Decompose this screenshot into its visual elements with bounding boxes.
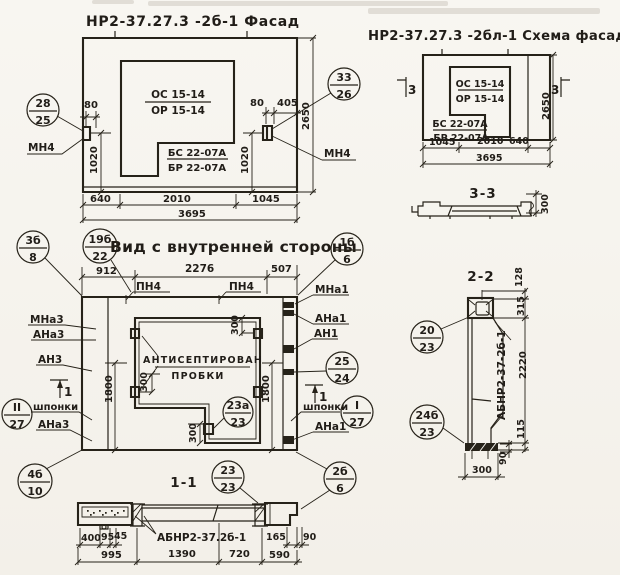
marker-top: 3б <box>25 234 41 247</box>
section-2-2-title: 2-2 <box>467 269 494 285</box>
marker-bottom: 23 <box>419 341 434 354</box>
marker-top: 25 <box>334 355 349 368</box>
block-mark-bottom: БР 22-07А <box>168 163 226 174</box>
marker-top: 1б <box>339 236 355 249</box>
profile-band <box>142 505 265 521</box>
scan-smudge <box>368 8 600 14</box>
dim-2276: 2276 <box>185 263 214 275</box>
plate-legs <box>472 451 488 459</box>
section-cut-label-right: 3 <box>551 83 559 97</box>
marker-bottom: 8 <box>29 251 37 264</box>
leader-line <box>296 452 330 509</box>
facade-drawing: НР2-37.27.3 -2б-1 Фасад ОС 15-14 ОР 15-1… <box>27 14 360 223</box>
window-mark-bottom: ОР 15-14 <box>456 94 505 105</box>
label-shponki-left: шпонки <box>33 402 78 413</box>
leader-line <box>36 430 92 441</box>
marker-top: 33 <box>336 71 351 84</box>
note-line-2: ПРОБКИ <box>171 371 224 382</box>
dim-640: 640 <box>509 136 529 147</box>
block-mark-top: БС 22-07А <box>432 119 488 130</box>
label-mna3: МНа3 <box>30 314 64 326</box>
leader-line <box>292 432 349 440</box>
marker-bottom: 6 <box>336 482 344 495</box>
marker-top: 24б <box>416 409 439 422</box>
leader-line <box>295 295 349 304</box>
section-2-2: 2-2 АБНР2-37-2б-1 128 315 2220 115 90 30… <box>410 267 529 480</box>
dim-2010: 2010 <box>477 136 504 147</box>
scan-smudge <box>92 0 134 4</box>
marker-bottom: 22 <box>92 250 107 263</box>
dim-400: 400 <box>81 533 101 544</box>
dim-1020-right: 1020 <box>240 146 251 174</box>
marker-bottom: 23 <box>220 481 235 494</box>
dim-line <box>262 107 301 124</box>
inner-view-title: Вид с внутренней стороны <box>110 238 357 256</box>
dim-300-left: 300 <box>139 372 150 392</box>
marker-bottom: 27 <box>9 418 24 431</box>
leader-line <box>240 488 258 503</box>
dim-3695: 3695 <box>178 209 206 220</box>
label-ana1: АНа1 <box>315 313 346 325</box>
marker-top: II <box>13 401 21 414</box>
section-cut-mark <box>397 77 406 97</box>
marker-bottom: 27 <box>349 416 364 429</box>
dim-995: 995 <box>101 550 122 561</box>
profile-left-block <box>78 503 132 525</box>
dim-1800-left: 1800 <box>104 375 115 403</box>
cut-arrowhead <box>312 385 318 393</box>
cut-arrowhead <box>57 380 63 388</box>
block-mark-top: БС 22-07А <box>168 148 226 159</box>
marker-top: 23а <box>227 399 250 412</box>
marker-top: 2б <box>332 465 348 478</box>
marker-bottom: 6 <box>343 253 351 266</box>
dim-1020-left: 1020 <box>89 146 100 174</box>
dim-300: 300 <box>472 465 492 476</box>
section-3-3-title: 3-3 <box>469 186 496 202</box>
dim-300: 300 <box>540 194 551 214</box>
dim-95: 95 <box>101 532 114 543</box>
label-an3: АН3 <box>38 354 62 366</box>
profile-tab-pin <box>102 525 106 529</box>
dim-1045: 1045 <box>429 137 455 148</box>
window-mark-bottom: ОР 15-14 <box>151 105 205 117</box>
cut-1-label-left: 1 <box>64 385 72 399</box>
leader-line <box>443 428 464 443</box>
leader-line <box>45 258 82 296</box>
marker-top: 4б <box>27 468 43 481</box>
section-1-1-title: 1-1 <box>170 475 197 491</box>
marker-bottom: 24 <box>334 372 350 385</box>
section-cut-label-left: 3 <box>408 83 416 97</box>
dim-90: 90 <box>303 532 317 543</box>
dim-315: 315 <box>516 296 527 316</box>
dim-300-top: 300 <box>230 315 241 335</box>
dim-90: 90 <box>498 451 509 465</box>
anchor-label-mn4-right: МН4 <box>324 148 351 160</box>
window-mark-top: ОС 15-14 <box>151 89 205 101</box>
leader-line <box>294 371 326 372</box>
dim-720: 720 <box>229 549 250 560</box>
section-3-3-profile <box>412 202 531 219</box>
marker-bottom: 23 <box>230 416 245 429</box>
dim-640: 640 <box>90 194 111 205</box>
dim-1800-right: 1800 <box>261 375 272 403</box>
dim-2220: 2220 <box>518 351 529 379</box>
label-ana1-bottom: АНа1 <box>315 421 346 433</box>
scanned-blueprint-page: НР2-37.27.3 -2б-1 Фасад ОС 15-14 ОР 15-1… <box>0 0 620 575</box>
dim-2650: 2650 <box>301 102 312 130</box>
dim-80-left: 80 <box>84 100 98 111</box>
dim-115: 115 <box>516 419 527 439</box>
dim-1045: 1045 <box>252 194 280 205</box>
section-2-2-product-label: АБНР2-37-2б-1 <box>496 330 508 420</box>
window-mark-top: ОС 15-14 <box>456 79 505 90</box>
marker-top: 28 <box>35 97 50 110</box>
label-ana3: АНа3 <box>33 329 64 341</box>
marker-top: 23 <box>220 464 235 477</box>
schema-title: НР2-37.27.3 -2бл-1 Схема фасада <box>368 28 620 44</box>
plate-label-pn4-a: ПН4 <box>136 281 161 293</box>
dim-128: 128 <box>514 267 525 287</box>
scan-smudge <box>148 1 448 6</box>
dim-590: 590 <box>269 550 290 561</box>
marker-top: I <box>355 399 359 412</box>
marker-top: 20 <box>419 324 435 337</box>
leader-line <box>135 516 156 534</box>
marker-bottom: 25 <box>35 114 50 127</box>
leader-line <box>46 450 82 469</box>
leader-line <box>214 418 224 428</box>
leader-line <box>57 116 83 131</box>
dim-300-bottom: 300 <box>188 423 199 443</box>
section-cut-mark <box>561 77 570 97</box>
label-an1: АН1 <box>314 328 338 340</box>
marker-bottom: 23 <box>419 426 434 439</box>
blueprint-canvas: НР2-37.27.3 -2б-1 Фасад ОС 15-14 ОР 15-1… <box>0 0 620 575</box>
dim-3695: 3695 <box>476 153 502 164</box>
dim-165: 165 <box>266 532 286 543</box>
marker-bottom: 26 <box>336 88 352 101</box>
schema-drawing: НР2-37.27.3 -2бл-1 Схема фасада ОС 15-14… <box>368 28 620 168</box>
section-1-1-product-label: АБНР2-37.2б-1 <box>157 532 246 544</box>
anchor-label-mn4-left: МН4 <box>28 142 55 154</box>
plate-label-pn4-b: ПН4 <box>229 281 254 293</box>
leader-line <box>441 317 469 329</box>
dim-912: 912 <box>96 266 117 277</box>
marker-bottom: 10 <box>27 485 43 498</box>
dim-80-right: 80 <box>250 98 264 109</box>
leader-line <box>294 339 338 349</box>
dim-405: 405 <box>277 98 298 109</box>
label-ana3-bottom: АНа3 <box>38 419 69 431</box>
marker-top: 19б <box>89 233 112 246</box>
note-line-1: АНТИСЕПТИРОВАН <box>143 355 263 366</box>
dim-line <box>262 360 283 453</box>
dim-1390: 1390 <box>168 549 196 560</box>
dim-2010: 2010 <box>163 194 191 205</box>
dim-45: 45 <box>114 531 127 542</box>
dim-507: 507 <box>271 264 292 275</box>
leader-line <box>291 412 340 421</box>
facade-title: НР2-37.27.3 -2б-1 Фасад <box>86 14 300 30</box>
section-1-1: 1-1 23 23 АБНР2-37.2б-1 400 95 45 165 90… <box>75 461 317 565</box>
right-rail-keys <box>283 302 294 444</box>
aggregate-dots <box>87 510 125 516</box>
dim-2650: 2650 <box>541 92 552 120</box>
label-mna1: МНа1 <box>315 284 349 296</box>
post-hatch <box>255 504 265 521</box>
inner-view-drawing: Вид с внутренней стороны 300 300 300 180… <box>2 229 373 509</box>
section-3-3: 3-3 300 <box>412 186 551 219</box>
